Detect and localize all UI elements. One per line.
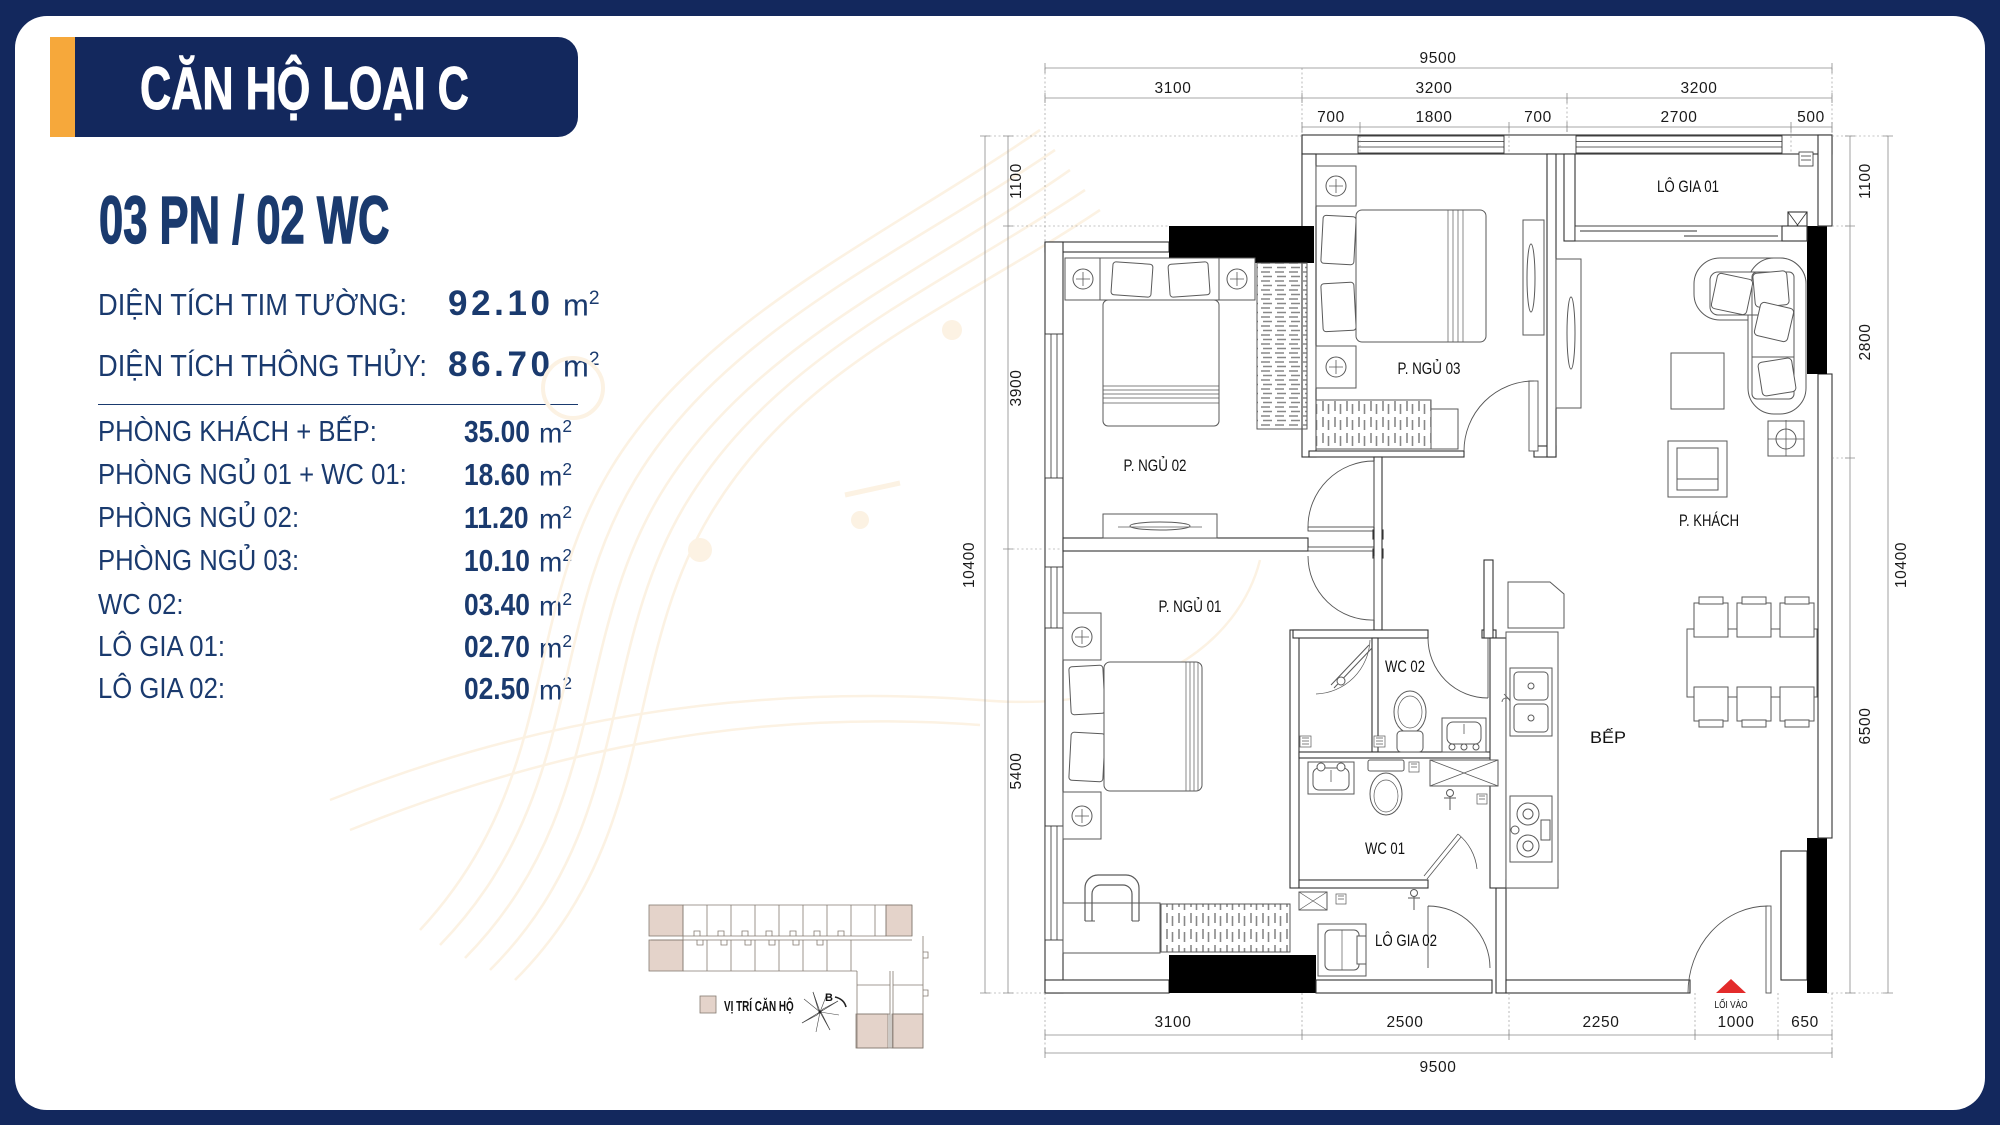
svg-text:2250: 2250: [1583, 1014, 1620, 1031]
svg-text:LÔ GIA 01: LÔ GIA 01: [1657, 177, 1719, 196]
svg-text:BẾP: BẾP: [1590, 728, 1626, 747]
svg-text:WC 02: WC 02: [1385, 657, 1425, 676]
svg-text:P. KHÁCH: P. KHÁCH: [1679, 511, 1739, 530]
svg-text:5400: 5400: [1008, 753, 1025, 790]
svg-text:3900: 3900: [1008, 370, 1025, 407]
svg-text:650: 650: [1791, 1014, 1819, 1031]
svg-text:3100: 3100: [1155, 80, 1192, 97]
svg-text:10400: 10400: [961, 542, 978, 588]
svg-text:700: 700: [1524, 109, 1552, 126]
svg-text:9500: 9500: [1420, 1059, 1457, 1076]
svg-text:B: B: [825, 992, 833, 1004]
svg-text:2500: 2500: [1387, 1014, 1424, 1031]
svg-text:3200: 3200: [1681, 80, 1718, 97]
svg-text:1100: 1100: [1857, 163, 1874, 199]
svg-text:WC 01: WC 01: [1365, 839, 1405, 858]
svg-text:500: 500: [1797, 109, 1825, 126]
svg-text:10400: 10400: [1893, 542, 1910, 588]
svg-text:3200: 3200: [1416, 80, 1453, 97]
svg-text:1800: 1800: [1416, 109, 1453, 126]
svg-text:2700: 2700: [1661, 109, 1698, 126]
svg-text:700: 700: [1317, 109, 1345, 126]
svg-text:3100: 3100: [1155, 1014, 1192, 1031]
svg-text:VỊ TRÍ CĂN HỘ: VỊ TRÍ CĂN HỘ: [724, 997, 794, 1015]
svg-text:1000: 1000: [1718, 1014, 1755, 1031]
svg-text:P. NGỦ 01: P. NGỦ 01: [1159, 597, 1222, 616]
svg-text:P. NGỦ 03: P. NGỦ 03: [1398, 359, 1461, 378]
svg-text:6500: 6500: [1857, 708, 1874, 745]
svg-text:2800: 2800: [1857, 324, 1874, 361]
svg-text:P. NGỦ 02: P. NGỦ 02: [1124, 456, 1187, 475]
svg-text:9500: 9500: [1420, 50, 1457, 67]
svg-text:LÔ GIA 02: LÔ GIA 02: [1375, 931, 1437, 950]
svg-text:LỐI VÀO: LỐI VÀO: [1715, 997, 1748, 1011]
svg-text:1100: 1100: [1008, 163, 1025, 199]
